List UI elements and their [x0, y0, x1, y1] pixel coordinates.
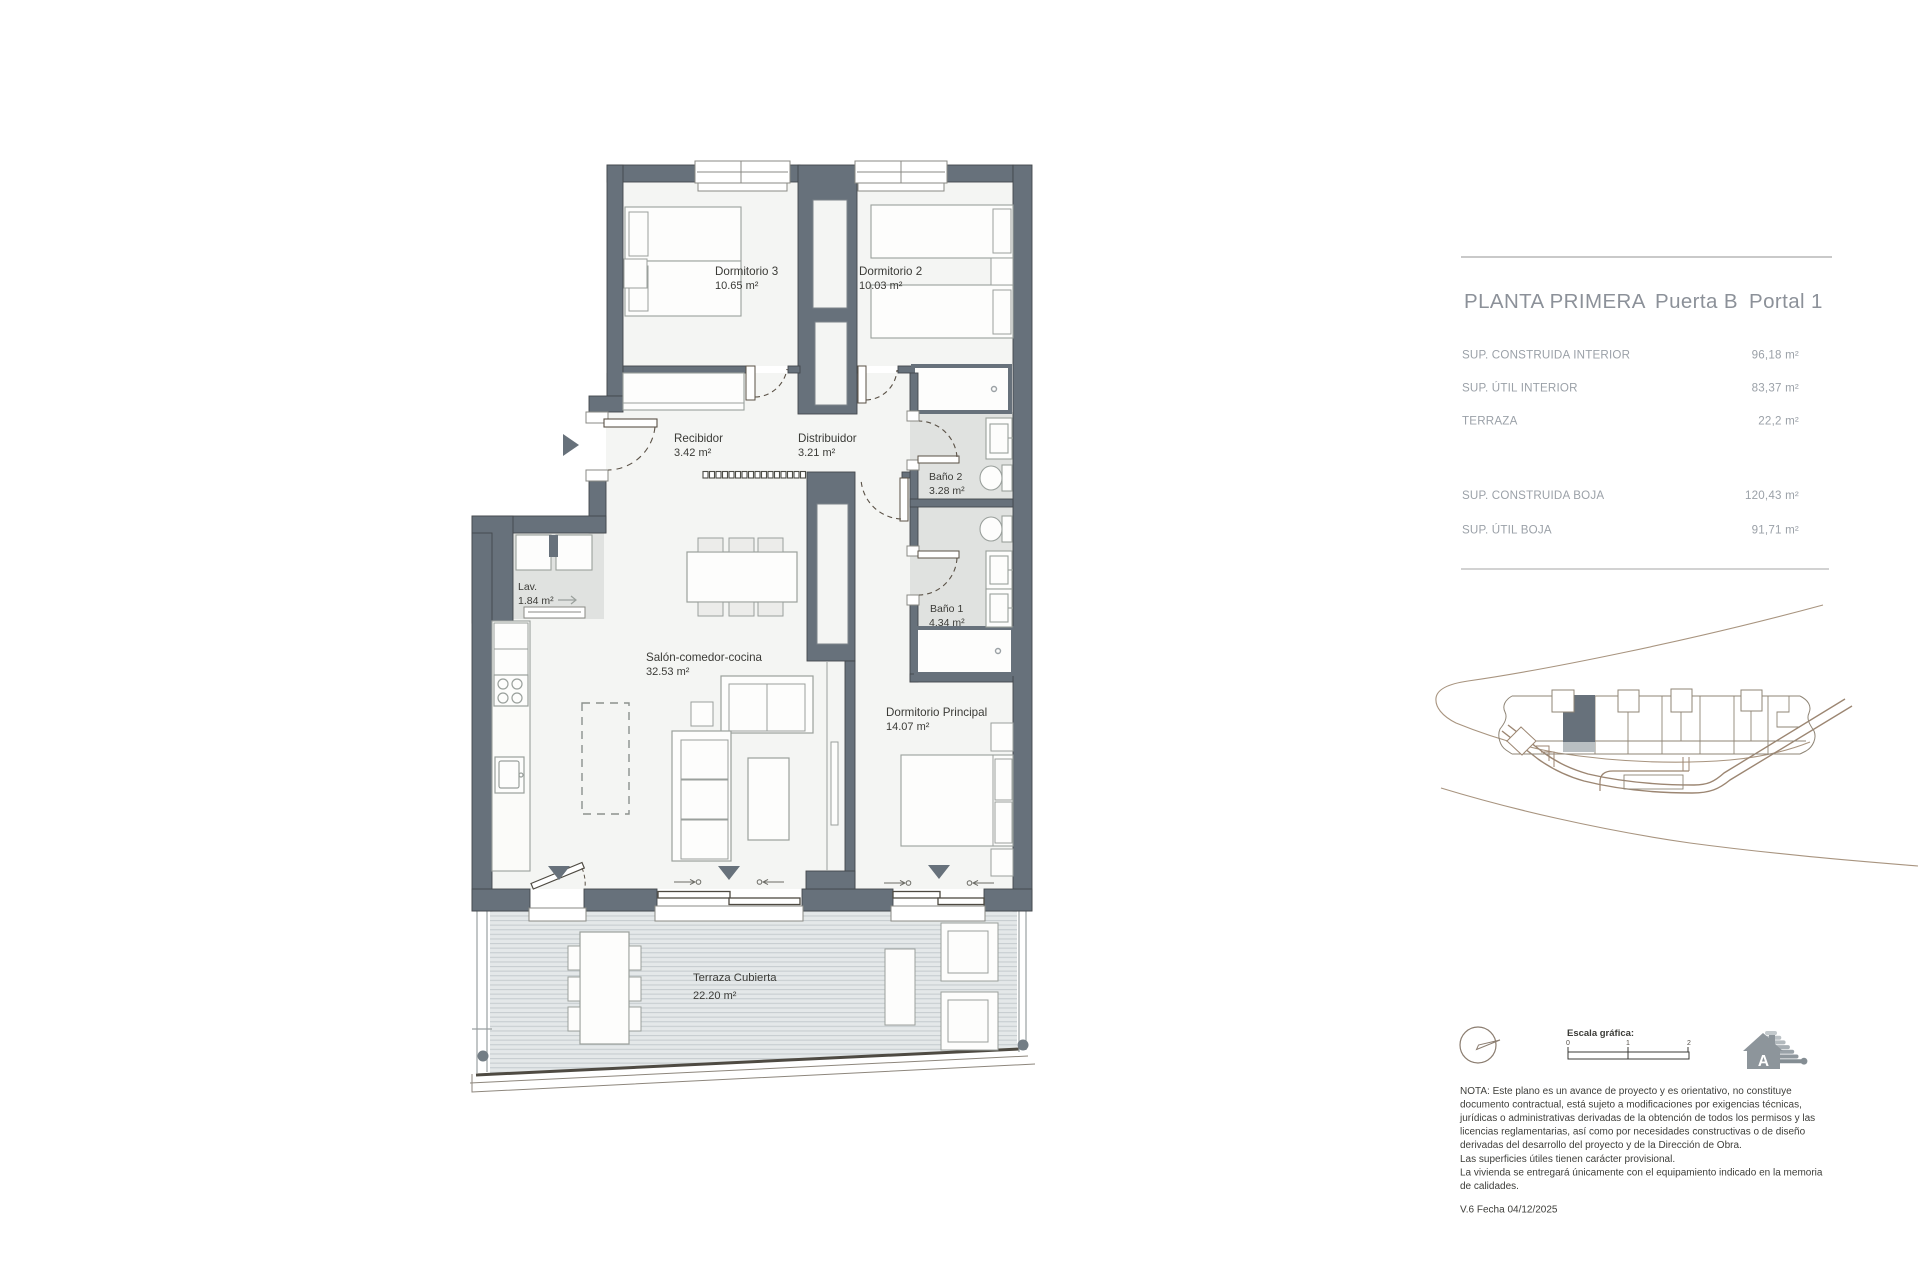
- svg-text:10.65 m²: 10.65 m²: [715, 280, 759, 292]
- svg-text:Dormitorio Principal: Dormitorio Principal: [886, 706, 987, 719]
- svg-text:0: 0: [1566, 1040, 1570, 1047]
- svg-text:derivadas del desarrollo del p: derivadas del desarrollo del proyecto y …: [1460, 1140, 1742, 1151]
- svg-text:de calidades.: de calidades.: [1460, 1181, 1519, 1192]
- svg-text:120,43 m²: 120,43 m²: [1745, 489, 1799, 502]
- svg-text:Dormitorio 3: Dormitorio 3: [715, 265, 778, 278]
- svg-text:jurídicas o administrativas de: jurídicas o administrativas derivadas de…: [1459, 1113, 1815, 1124]
- svg-text:83,37 m²: 83,37 m²: [1752, 382, 1799, 395]
- svg-text:14.07 m²: 14.07 m²: [886, 721, 930, 733]
- svg-text:96,18 m²: 96,18 m²: [1752, 349, 1799, 362]
- svg-text:Distribuidor: Distribuidor: [798, 432, 857, 445]
- svg-text:Dormitorio 2: Dormitorio 2: [859, 265, 922, 278]
- svg-text:3.28 m²: 3.28 m²: [929, 485, 965, 497]
- svg-text:1: 1: [1626, 1040, 1630, 1047]
- svg-text:licencias reglamentarias, así: licencias reglamentarias, así como por n…: [1460, 1127, 1806, 1138]
- svg-text:3.21 m²: 3.21 m²: [798, 447, 836, 459]
- svg-text:NOTA: Este plano es un avance: NOTA: Este plano es un avance de proyect…: [1460, 1086, 1792, 1097]
- svg-text:TERRAZA: TERRAZA: [1462, 415, 1518, 428]
- svg-text:1.84 m²: 1.84 m²: [518, 595, 554, 607]
- svg-text:22,2 m²: 22,2 m²: [1758, 415, 1799, 428]
- svg-text:SUP. CONSTRUIDA BOJA: SUP. CONSTRUIDA BOJA: [1462, 489, 1604, 502]
- svg-text:4.34 m²: 4.34 m²: [929, 617, 965, 629]
- svg-text:V.6 Fecha 04/12/2025: V.6 Fecha 04/12/2025: [1460, 1205, 1558, 1216]
- svg-text:32.53 m²: 32.53 m²: [646, 666, 690, 678]
- svg-text:Puerta B: Puerta B: [1655, 290, 1738, 313]
- svg-text:PLANTA PRIMERA: PLANTA PRIMERA: [1464, 290, 1646, 313]
- svg-text:10.03 m²: 10.03 m²: [859, 280, 903, 292]
- svg-text:Salón-comedor-cocina: Salón-comedor-cocina: [646, 651, 763, 664]
- svg-text:2: 2: [1687, 1040, 1691, 1047]
- svg-text:22.20 m²: 22.20 m²: [693, 990, 737, 1002]
- svg-text:Las superficies útiles tienen: Las superficies útiles tienen carácter p…: [1460, 1154, 1675, 1165]
- svg-text:SUP. ÚTIL BOJA: SUP. ÚTIL BOJA: [1462, 524, 1552, 537]
- svg-text:SUP. CONSTRUIDA INTERIOR: SUP. CONSTRUIDA INTERIOR: [1462, 349, 1630, 362]
- svg-text:Terraza Cubierta: Terraza Cubierta: [693, 972, 777, 984]
- svg-text:Recibidor: Recibidor: [674, 432, 723, 445]
- svg-text:Lav.: Lav.: [518, 581, 537, 593]
- svg-text:Escala gráfica:: Escala gráfica:: [1567, 1028, 1634, 1039]
- svg-text:La vivienda se entregará única: La vivienda se entregará únicamente con …: [1460, 1167, 1823, 1178]
- svg-text:A: A: [1758, 1053, 1769, 1070]
- svg-text:documento contractual, está su: documento contractual, está sujeto a mod…: [1460, 1100, 1802, 1111]
- svg-text:Baño 1: Baño 1: [930, 603, 963, 615]
- svg-text:Portal 1: Portal 1: [1749, 290, 1823, 313]
- svg-text:SUP. ÚTIL INTERIOR: SUP. ÚTIL INTERIOR: [1462, 382, 1578, 395]
- svg-text:3.42 m²: 3.42 m²: [674, 447, 712, 459]
- svg-text:91,71 m²: 91,71 m²: [1752, 524, 1799, 537]
- svg-text:Baño 2: Baño 2: [929, 471, 962, 483]
